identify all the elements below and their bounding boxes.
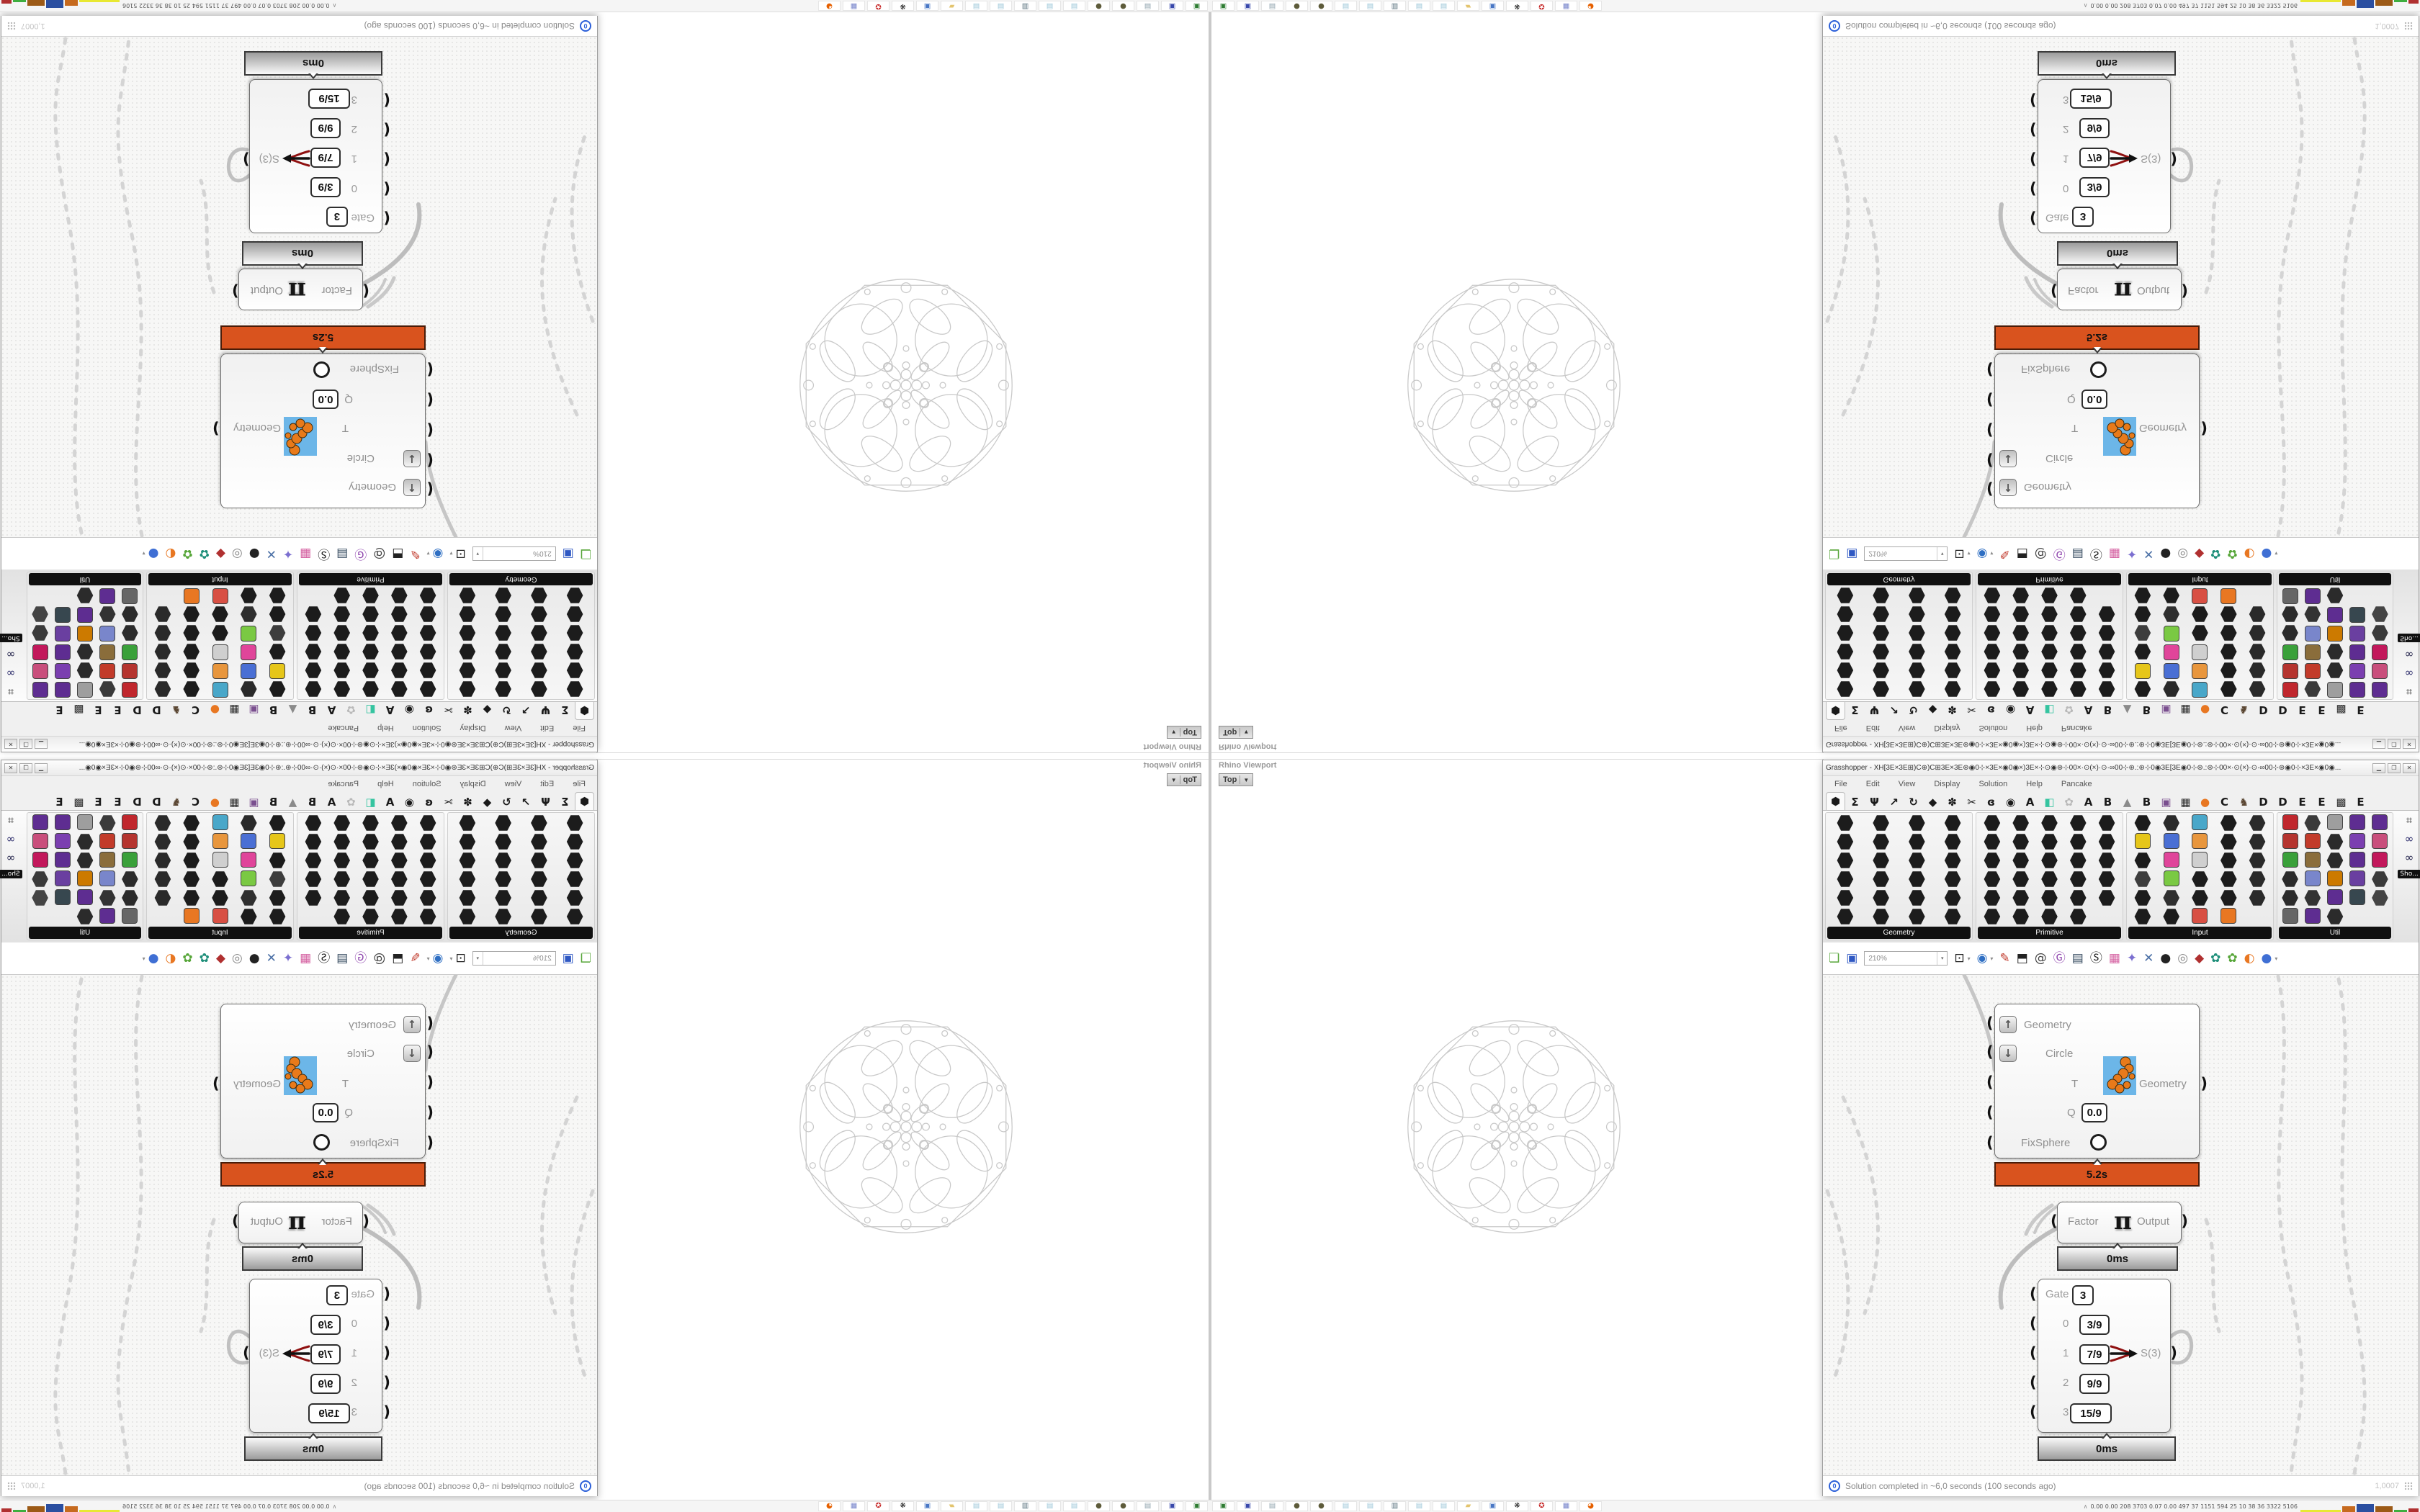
gate-component[interactable]: ( ( ( ( ( Gate 3 0 3/9 1 7/9 2 9/9 3 15/… — [249, 1279, 382, 1433]
component-icon[interactable] — [122, 833, 138, 849]
notepad-icon[interactable]: ▤ — [965, 1501, 987, 1511]
chevron-down-icon[interactable]: ▾ — [449, 955, 452, 962]
component-icon[interactable] — [495, 606, 512, 623]
component-icon[interactable] — [1984, 814, 2001, 832]
component-icon[interactable] — [1908, 852, 1925, 869]
package-icon[interactable]: ▦ — [300, 953, 311, 965]
stream-value-field[interactable]: 3/9 — [2079, 1315, 2110, 1335]
menu-display[interactable]: Display — [1934, 780, 1960, 788]
folder-icon[interactable]: ▰ — [941, 1, 963, 11]
show-label[interactable]: Sho... — [0, 870, 22, 878]
component-icon[interactable] — [183, 643, 200, 660]
component-icon[interactable] — [1984, 624, 2001, 642]
component-icon[interactable] — [2326, 587, 2344, 604]
grasshopper-canvas[interactable]: ( ( ( ( ( ↑ ↓ Geometry Circle T Q FixSph… — [1, 37, 597, 537]
component-icon[interactable] — [2220, 852, 2237, 869]
category-tab-icon[interactable]: ◧ — [361, 794, 380, 810]
component-icon[interactable] — [2305, 833, 2321, 849]
component-icon[interactable] — [2220, 662, 2237, 679]
component-icon[interactable] — [390, 587, 408, 604]
category-tab-icon[interactable]: ▦ — [225, 794, 244, 810]
component-icon[interactable] — [530, 870, 547, 888]
flame-icon[interactable]: ❋ — [1506, 1501, 1528, 1511]
category-tab-icon[interactable]: B — [264, 794, 283, 810]
component-icon[interactable] — [1944, 662, 1961, 679]
component-icon[interactable] — [1837, 587, 1854, 604]
camera-icon[interactable]: ⬒ — [392, 548, 403, 560]
category-tab-icon[interactable]: D — [2273, 794, 2293, 810]
component-icon[interactable] — [1984, 606, 2001, 623]
component-icon[interactable] — [1984, 889, 2001, 906]
input-hook[interactable]: ( — [2051, 1212, 2058, 1230]
component-icon[interactable] — [2372, 644, 2388, 660]
grasshopper-canvas[interactable]: ( ( ( ( ( ↑ ↓ Geometry Circle T Q FixSph… — [1823, 37, 2419, 537]
input-hook[interactable]: ( — [2030, 210, 2037, 227]
resize-grip[interactable] — [7, 1482, 16, 1490]
component-icon[interactable] — [154, 870, 171, 888]
gate-value-field[interactable]: 3 — [326, 1285, 348, 1305]
component-icon[interactable] — [2372, 833, 2388, 849]
component-icon[interactable] — [333, 814, 351, 832]
category-tab-icon[interactable]: A — [2020, 702, 2040, 718]
component-icon[interactable] — [2163, 606, 2180, 623]
graft-down-icon[interactable]: ↓ — [403, 450, 421, 467]
save-file-icon[interactable]: ▣ — [1846, 548, 1857, 560]
category-tab-icon[interactable]: D — [127, 794, 147, 810]
component-icon[interactable] — [305, 833, 322, 850]
component-icon[interactable] — [76, 833, 94, 850]
component-icon[interactable] — [2098, 606, 2115, 623]
component-icon[interactable] — [2305, 626, 2321, 642]
preview-blob-icon[interactable]: ● — [2160, 953, 2171, 965]
sketch-pen-icon[interactable]: ✎ — [1999, 953, 2009, 965]
component-icon[interactable] — [55, 663, 71, 679]
preview-shaded-icon[interactable]: ◆ — [2195, 953, 2204, 965]
component-icon[interactable] — [1984, 662, 2001, 679]
cartridge-green-icon[interactable]: ▣ — [1186, 1, 1208, 11]
category-tab-icon[interactable]: ✽ — [458, 794, 478, 810]
stream-value-field[interactable]: 7/9 — [310, 148, 341, 168]
component-icon[interactable] — [2249, 833, 2266, 850]
component-icon[interactable] — [2191, 606, 2208, 623]
component-icon[interactable] — [2372, 663, 2388, 679]
navigate-map-icon[interactable]: ▤ — [2072, 953, 2084, 965]
q-value-field[interactable]: 0.0 — [2081, 1103, 2107, 1122]
component-icon[interactable] — [495, 662, 512, 679]
hints-bulb-icon[interactable]: ✦ — [2127, 548, 2137, 560]
output-hook[interactable]: ) — [243, 150, 250, 168]
category-tab-icon[interactable]: B — [302, 794, 322, 810]
graft-down-icon[interactable]: ↓ — [1999, 450, 2017, 467]
package-icon[interactable]: ▦ — [2109, 548, 2120, 560]
component-icon[interactable] — [32, 644, 48, 660]
component-icon[interactable] — [1873, 833, 1890, 850]
component-icon[interactable] — [2327, 682, 2343, 698]
component-icon[interactable] — [2012, 643, 2030, 660]
component-icon[interactable] — [2163, 587, 2180, 604]
component-icon[interactable] — [32, 870, 49, 888]
q-value-field[interactable]: 0.0 — [313, 1103, 339, 1122]
input-hook[interactable]: ( — [2030, 1285, 2037, 1302]
menu-display[interactable]: Display — [460, 724, 486, 732]
component-icon[interactable] — [2220, 680, 2237, 698]
preview-eye-icon[interactable]: ◉ — [433, 953, 444, 965]
component-icon[interactable] — [2305, 908, 2321, 924]
component-icon[interactable] — [419, 606, 436, 623]
component-icon[interactable] — [2282, 852, 2298, 868]
component-icon[interactable] — [495, 852, 512, 869]
input-hook[interactable]: ( — [383, 1344, 390, 1362]
input-hook[interactable]: ( — [2030, 1315, 2037, 1332]
component-icon[interactable] — [530, 908, 547, 925]
chevron-down-icon[interactable]: ▼ — [1171, 777, 1177, 783]
component-icon[interactable] — [2191, 889, 2208, 906]
component-icon[interactable] — [269, 833, 285, 849]
component-icon[interactable] — [333, 643, 351, 660]
component-icon[interactable] — [2164, 626, 2179, 642]
input-hook[interactable]: ( — [2030, 91, 2037, 109]
input-hook[interactable]: ( — [362, 282, 369, 300]
component-icon[interactable] — [2249, 606, 2266, 623]
component-icon[interactable] — [2098, 624, 2115, 642]
component-icon[interactable] — [122, 663, 138, 679]
category-tab-icon[interactable]: B — [2098, 794, 2117, 810]
stream-value-field[interactable]: 15/9 — [2070, 89, 2112, 109]
component-icon[interactable] — [2327, 814, 2343, 830]
preview-blob-icon[interactable]: ● — [249, 953, 260, 965]
component-icon[interactable] — [2098, 680, 2115, 698]
component-icon[interactable] — [2040, 662, 2058, 679]
component-icon[interactable] — [333, 624, 351, 642]
chevron-down-icon[interactable]: ▾ — [2275, 551, 2277, 557]
category-tab-icon[interactable]: Σ — [1845, 702, 1865, 718]
component-icon[interactable] — [32, 663, 48, 679]
minimize-button[interactable]: ▁ — [35, 763, 48, 773]
category-tab-icon[interactable]: ⬢ — [1826, 792, 1845, 810]
component-icon[interactable] — [2164, 833, 2179, 849]
navigate-map-icon[interactable]: ▤ — [2072, 548, 2084, 560]
component-icon[interactable] — [419, 833, 436, 850]
navigate-map-icon[interactable]: ▤ — [336, 548, 348, 560]
component-icon[interactable] — [76, 662, 94, 679]
component-icon[interactable] — [55, 626, 71, 642]
component-icon[interactable] — [390, 852, 408, 869]
flame-icon[interactable]: ❋ — [1506, 1, 1528, 11]
component-icon[interactable] — [2220, 870, 2237, 888]
component-icon[interactable] — [1984, 643, 2001, 660]
hints-bulb-icon[interactable]: ✦ — [2127, 953, 2137, 965]
fixsphere-component[interactable]: ( ( ( ( ( ↑ ↓ Geometry Circle T Q FixSph… — [220, 1004, 426, 1158]
category-tab-icon[interactable]: ⬢ — [575, 792, 594, 810]
component-icon[interactable] — [2040, 852, 2058, 869]
output-hook[interactable]: ) — [2181, 282, 2188, 300]
component-icon[interactable] — [183, 814, 200, 832]
component-icon[interactable] — [2012, 908, 2030, 925]
menu-file[interactable]: File — [573, 780, 586, 788]
component-icon[interactable] — [2220, 814, 2237, 832]
component-icon[interactable] — [459, 624, 476, 642]
notepad-icon[interactable]: ▤ — [1433, 1501, 1455, 1511]
preview-shaded-icon[interactable]: ◆ — [216, 953, 225, 965]
panel-label[interactable]: Input — [2128, 927, 2272, 939]
stream-value-field[interactable]: 15/9 — [308, 1403, 350, 1423]
sphere-blue-icon[interactable]: ● — [2261, 953, 2272, 965]
output-hook[interactable]: ) — [212, 1075, 220, 1092]
component-icon[interactable] — [2220, 643, 2237, 660]
show-label[interactable]: Sho... — [2398, 870, 2420, 878]
component-icon[interactable] — [55, 644, 71, 660]
wire-display-icon[interactable]: ✕ — [266, 953, 277, 965]
component-icon[interactable] — [269, 680, 286, 698]
input-hook[interactable]: ( — [2030, 1403, 2037, 1421]
component-icon[interactable] — [566, 606, 583, 623]
menu-help[interactable]: Help — [2026, 780, 2043, 788]
wire-display-icon[interactable]: ✕ — [2143, 548, 2154, 560]
component-icon[interactable] — [459, 889, 476, 906]
component-icon[interactable] — [269, 814, 286, 832]
component-icon[interactable] — [530, 833, 547, 850]
plugin-icon[interactable]: ⌗ — [2406, 814, 2412, 827]
component-icon[interactable] — [183, 624, 200, 642]
notepad-icon[interactable]: ▤ — [990, 1501, 1012, 1511]
retro-computer-icon[interactable]: ▥ — [1384, 1, 1406, 11]
component-icon[interactable] — [459, 833, 476, 850]
component-icon[interactable] — [2372, 852, 2388, 868]
notepad-icon[interactable]: ▤ — [1039, 1501, 1061, 1511]
component-icon[interactable] — [2098, 852, 2115, 869]
pi-multiply-component[interactable]: ( Factor π Output ) — [2057, 269, 2182, 310]
component-icon[interactable] — [2040, 680, 2058, 698]
component-icon[interactable] — [305, 889, 322, 906]
component-icon[interactable] — [1873, 606, 1890, 623]
input-hook[interactable]: ( — [426, 451, 434, 469]
component-icon[interactable] — [212, 663, 228, 679]
category-tab-icon[interactable]: A — [322, 702, 341, 718]
component-icon[interactable] — [240, 680, 257, 698]
component-icon[interactable] — [2134, 606, 2151, 623]
component-icon[interactable] — [269, 624, 286, 642]
component-icon[interactable] — [2220, 889, 2237, 906]
component-icon[interactable] — [1837, 643, 1854, 660]
panel-label[interactable]: Geometry — [1827, 927, 1971, 939]
component-icon[interactable] — [183, 852, 200, 869]
pi-multiply-component[interactable]: ( Factor π Output ) — [2057, 1202, 2182, 1243]
component-icon[interactable] — [1944, 624, 1961, 642]
component-icon[interactable] — [1944, 889, 1961, 906]
component-icon[interactable] — [362, 852, 380, 869]
category-tab-icon[interactable]: B — [302, 702, 322, 718]
component-icon[interactable] — [2326, 908, 2344, 925]
component-icon[interactable] — [1984, 833, 2001, 850]
input-hook[interactable]: ( — [1986, 1074, 1994, 1091]
chevron-down-icon[interactable]: ▾ — [1968, 551, 1971, 557]
component-icon[interactable] — [566, 624, 583, 642]
menu-file[interactable]: File — [573, 724, 586, 732]
component-icon[interactable] — [154, 606, 171, 623]
component-icon[interactable] — [2134, 624, 2151, 642]
component-icon[interactable] — [419, 662, 436, 679]
stream-value-field[interactable]: 15/9 — [308, 89, 350, 109]
category-tab-icon[interactable]: ◧ — [361, 702, 380, 718]
component-icon[interactable] — [1984, 908, 2001, 925]
component-icon[interactable] — [419, 587, 436, 604]
component-icon[interactable] — [390, 624, 408, 642]
component-icon[interactable] — [530, 606, 547, 623]
input-hook[interactable]: ( — [426, 421, 434, 438]
component-icon[interactable] — [2012, 662, 2030, 679]
resize-grip[interactable] — [7, 22, 16, 30]
rhino-viewport[interactable]: Rhino Viewport Top ▼ — [598, 12, 1210, 756]
calculator-icon[interactable]: ▦ — [1555, 1, 1577, 11]
component-icon[interactable] — [2372, 814, 2388, 830]
component-icon[interactable] — [459, 643, 476, 660]
fixsphere-toggle[interactable] — [2090, 1134, 2107, 1151]
input-hook[interactable]: ( — [1986, 421, 1994, 438]
output-hook[interactable]: ) — [2170, 1344, 2177, 1362]
menu-view[interactable]: View — [505, 780, 522, 788]
panel-label[interactable]: Input — [148, 573, 292, 585]
component-icon[interactable] — [1908, 587, 1925, 604]
component-icon[interactable] — [1944, 643, 1961, 660]
sketch-pen-icon[interactable]: ✎ — [410, 548, 420, 560]
component-icon[interactable] — [2098, 889, 2115, 906]
component-icon[interactable] — [240, 889, 257, 906]
component-icon[interactable] — [2305, 870, 2321, 886]
chevron-down-icon[interactable]: ▾ — [1990, 551, 1993, 557]
calculator-icon[interactable]: ▦ — [1555, 1501, 1577, 1511]
component-icon[interactable] — [183, 889, 200, 906]
stream-value-field[interactable]: 9/9 — [310, 118, 341, 138]
canvas-zoom-dropdown[interactable]: 210%▾ — [472, 951, 556, 966]
component-icon[interactable] — [566, 908, 583, 925]
scroll-icon[interactable]: ▤ — [1137, 1501, 1159, 1511]
rhino-viewport[interactable]: Rhino Viewport Top ▼ — [598, 756, 1210, 1500]
component-icon[interactable] — [2304, 889, 2321, 906]
input-hook[interactable]: ( — [383, 150, 390, 168]
component-icon[interactable] — [530, 814, 547, 832]
component-icon[interactable] — [2134, 908, 2151, 925]
red-badge-icon[interactable]: ✪ — [867, 1501, 889, 1511]
plugin-icon[interactable]: ∞ — [6, 648, 16, 661]
component-icon[interactable] — [419, 908, 436, 925]
component-icon[interactable] — [1944, 870, 1961, 888]
category-tab-icon[interactable]: D — [2273, 702, 2293, 718]
component-icon[interactable] — [32, 682, 48, 698]
wire-display-icon[interactable]: ✕ — [2143, 953, 2154, 965]
component-icon[interactable] — [241, 833, 256, 849]
chevron-down-icon[interactable]: ▼ — [1243, 777, 1249, 783]
component-icon[interactable] — [2326, 643, 2344, 660]
component-icon[interactable] — [154, 680, 171, 698]
component-icon[interactable] — [2012, 624, 2030, 642]
output-hook[interactable]: ) — [232, 282, 239, 300]
fixsphere-toggle[interactable] — [2090, 361, 2107, 378]
component-icon[interactable] — [2349, 833, 2365, 849]
component-icon[interactable] — [390, 870, 408, 888]
graft-down-icon[interactable]: ↓ — [403, 1045, 421, 1062]
zoom-extents-icon[interactable]: ⊡ — [455, 953, 465, 965]
menu-solution[interactable]: Solution — [413, 724, 442, 732]
component-icon[interactable] — [2192, 644, 2208, 660]
component-icon[interactable] — [566, 814, 583, 832]
package-icon[interactable]: ▦ — [300, 548, 311, 560]
chevron-up-icon[interactable]: ∧ — [2084, 1503, 2088, 1510]
component-icon[interactable] — [122, 682, 138, 698]
camera-icon[interactable]: ⬒ — [2017, 548, 2028, 560]
remote-control-icon[interactable]: @ — [373, 953, 385, 965]
graft-down-icon[interactable]: ↓ — [1999, 1045, 2017, 1062]
component-icon[interactable] — [1873, 680, 1890, 698]
component-icon[interactable] — [2349, 870, 2365, 886]
component-icon[interactable] — [269, 889, 286, 906]
component-icon[interactable] — [333, 680, 351, 698]
component-icon[interactable] — [76, 908, 94, 925]
category-tab-icon[interactable]: A — [380, 794, 400, 810]
component-icon[interactable] — [212, 606, 229, 623]
output-hook[interactable]: ) — [2170, 150, 2177, 168]
computer-icon[interactable]: ▣ — [916, 1501, 938, 1511]
component-icon[interactable] — [2349, 814, 2365, 830]
plugin-icon[interactable]: ⌗ — [8, 685, 14, 698]
zoom-extents-icon[interactable]: ⊡ — [455, 548, 465, 560]
preview-wireframe-icon[interactable]: ◎ — [2177, 548, 2188, 560]
component-icon[interactable] — [495, 680, 512, 698]
category-tab-icon[interactable]: E — [2312, 702, 2331, 718]
component-icon[interactable] — [2163, 814, 2180, 832]
leaf-teal-icon[interactable]: ✿ — [200, 548, 210, 560]
component-icon[interactable] — [1944, 680, 1961, 698]
notepad-icon[interactable]: ▤ — [1063, 1, 1085, 11]
component-icon[interactable] — [2327, 607, 2343, 623]
category-tab-icon[interactable]: ▣ — [2156, 794, 2176, 810]
component-icon[interactable] — [2040, 814, 2058, 832]
category-tab-icon[interactable]: E — [2312, 794, 2331, 810]
component-icon[interactable] — [1908, 870, 1925, 888]
component-icon[interactable] — [32, 833, 48, 849]
component-icon[interactable] — [333, 852, 351, 869]
component-icon[interactable] — [495, 908, 512, 925]
menu-pancake[interactable]: Pancake — [328, 780, 359, 788]
computer-icon[interactable]: ▣ — [1482, 1, 1504, 11]
camera-icon[interactable]: ⬒ — [392, 953, 403, 965]
component-icon[interactable] — [1908, 643, 1925, 660]
stream-value-field[interactable]: 7/9 — [2079, 1344, 2110, 1364]
category-tab-icon[interactable]: ▩ — [2331, 794, 2351, 810]
chevron-up-icon[interactable]: ∧ — [2084, 3, 2088, 9]
panel-label[interactable]: Input — [148, 927, 292, 939]
chevron-down-icon[interactable]: ▼ — [1243, 729, 1249, 736]
component-icon[interactable] — [2069, 889, 2087, 906]
component-icon[interactable] — [2282, 908, 2298, 924]
notepad-icon[interactable]: ▤ — [1408, 1, 1430, 11]
component-icon[interactable] — [269, 852, 286, 869]
flame-icon[interactable]: ❋ — [892, 1, 914, 11]
navigate-map-icon[interactable]: ▤ — [336, 953, 348, 965]
category-tab-icon[interactable]: ◉ — [400, 794, 419, 810]
orb-icon[interactable]: ● — [1088, 1501, 1110, 1511]
menu-edit[interactable]: Edit — [540, 780, 554, 788]
component-icon[interactable] — [2134, 852, 2151, 869]
category-tab-icon[interactable]: ▩ — [2331, 702, 2351, 718]
chevron-down-icon[interactable]: ▾ — [473, 547, 483, 560]
component-icon[interactable] — [2134, 814, 2151, 832]
component-icon[interactable] — [1944, 908, 1961, 925]
category-tab-icon[interactable]: ◆ — [1923, 702, 1942, 718]
category-tab-icon[interactable]: Σ — [555, 702, 575, 718]
orb-icon[interactable]: ● — [1310, 1, 1332, 11]
rhino-viewport[interactable]: Rhino Viewport Top ▼ — [1210, 12, 1822, 756]
category-tab-icon[interactable]: C — [2215, 794, 2234, 810]
